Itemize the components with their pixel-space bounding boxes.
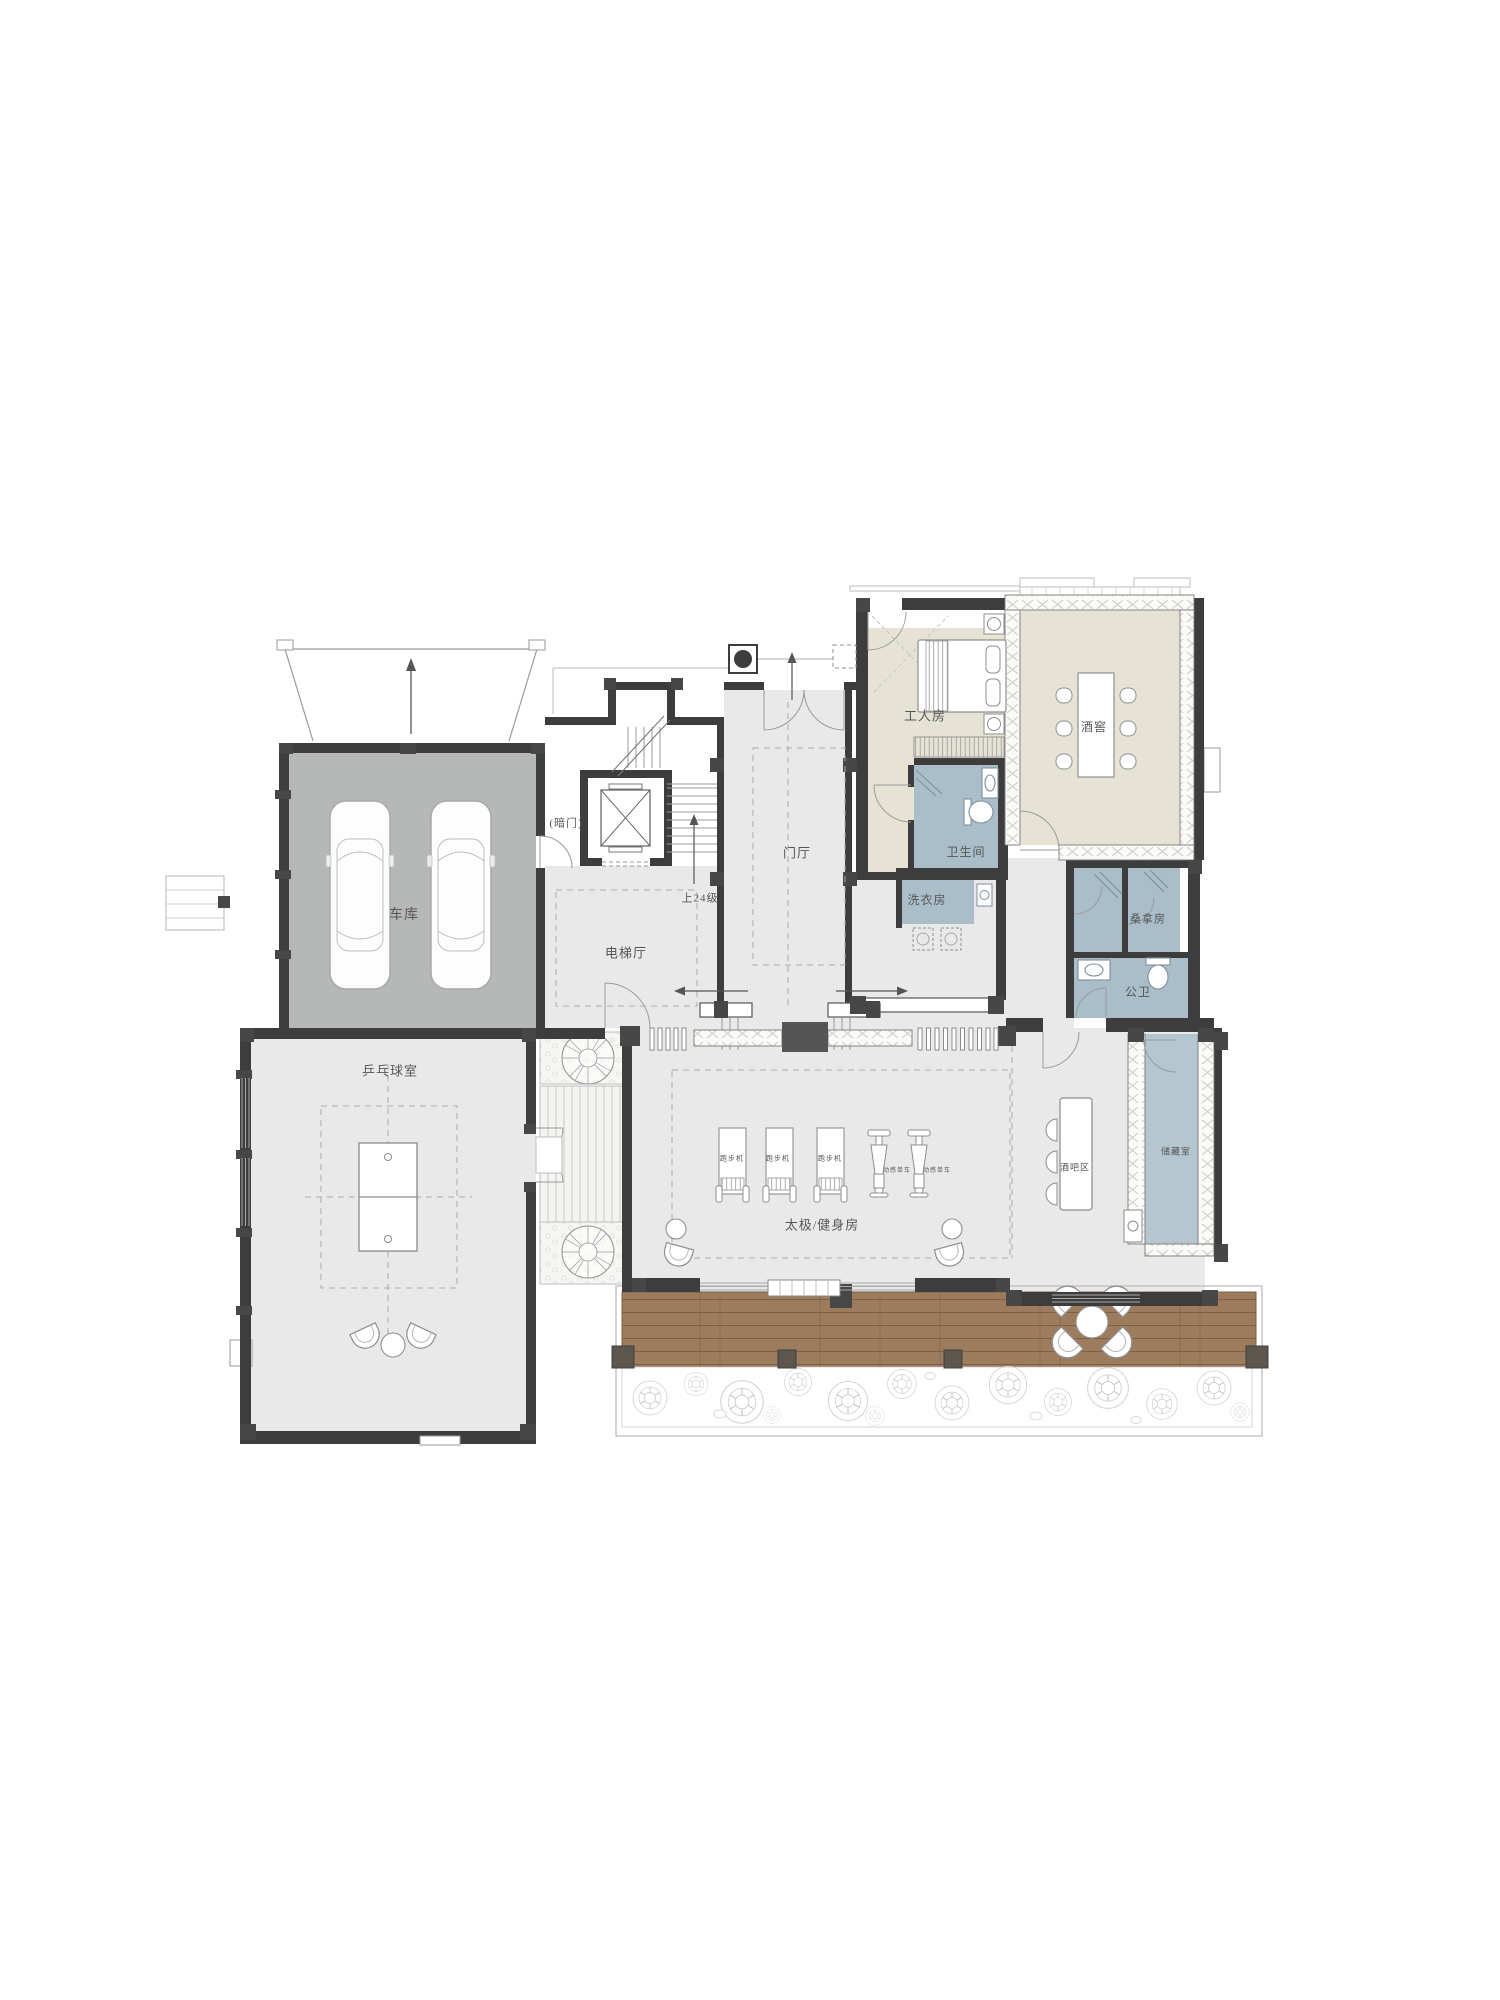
- corridor-north-floor: [1006, 858, 1066, 882]
- floor-plan-canvas: 车库乒乓球室电梯厅门厅(暗门)上24级工人房卫生间洗衣房酒窖桑拿房公卫太极/健身…: [0, 0, 1500, 2000]
- treadmills: [716, 1128, 847, 1202]
- feature-wall-right: [828, 1030, 912, 1046]
- car-right: [427, 801, 495, 989]
- south-wall-notch: [420, 1436, 460, 1445]
- wine-wall-south: [1059, 845, 1194, 860]
- floor-plan-drawing: [0, 0, 1500, 2000]
- garage-floor: [289, 753, 536, 1028]
- car-left: [326, 801, 394, 989]
- feature-wall-left: [694, 1030, 782, 1046]
- west-porch: [166, 876, 252, 1366]
- toilet-bowl: [969, 801, 993, 823]
- bar-sink: [1124, 1210, 1142, 1242]
- fireplace-block: [782, 1022, 828, 1052]
- wardrobe: [914, 737, 1004, 757]
- storage-shelf-east: [1198, 1034, 1214, 1244]
- drive-arrow: [406, 658, 416, 671]
- garage-canopy: [277, 640, 545, 741]
- pingpong-side-table: [381, 1333, 405, 1357]
- wine-wall-west: [1005, 610, 1020, 845]
- entry-arrow: [788, 652, 797, 663]
- elevator: [601, 784, 650, 866]
- pingpong-door-landing: [536, 1137, 562, 1173]
- pebble-garden: [622, 1367, 1252, 1427]
- pillow-1: [986, 646, 1000, 673]
- bar-counter: [1060, 1098, 1092, 1210]
- stair-break-line: [612, 716, 670, 776]
- flue-icon: [734, 650, 752, 668]
- wine-wall-north: [1005, 595, 1194, 610]
- wine-wall-east: [1180, 610, 1194, 845]
- wine-cellar-furniture: [1056, 673, 1136, 777]
- hidden-door-arc: [540, 836, 572, 868]
- wc-toilet-tank: [1146, 958, 1170, 965]
- washer-unit: [977, 884, 992, 906]
- laundry-floor: [902, 880, 974, 924]
- tasting-table: [1078, 673, 1114, 777]
- wc-toilet-bowl: [1148, 965, 1168, 989]
- storage-floor: [1145, 1034, 1198, 1244]
- tree-north: [562, 1032, 614, 1084]
- pillow-2: [986, 679, 1000, 706]
- storage-wall-south: [1145, 1244, 1214, 1256]
- porch-column: [833, 645, 856, 668]
- tree-south: [562, 1226, 614, 1278]
